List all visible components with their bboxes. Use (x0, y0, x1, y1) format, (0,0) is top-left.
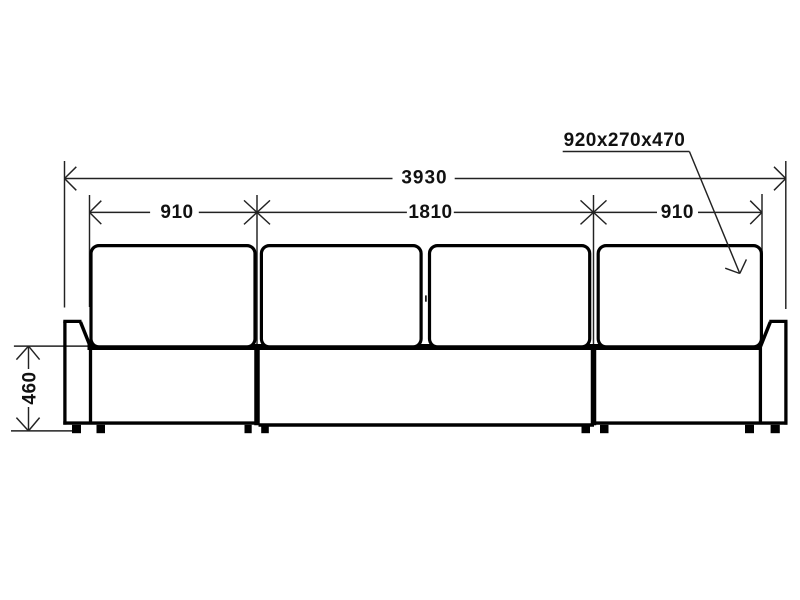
svg-text:910: 910 (160, 202, 193, 223)
svg-text:3930: 3930 (401, 168, 447, 189)
svg-text:910: 910 (661, 202, 694, 223)
svg-text:1810: 1810 (408, 202, 452, 223)
svg-text:920x270x470: 920x270x470 (564, 130, 686, 151)
svg-text:460: 460 (20, 371, 41, 404)
